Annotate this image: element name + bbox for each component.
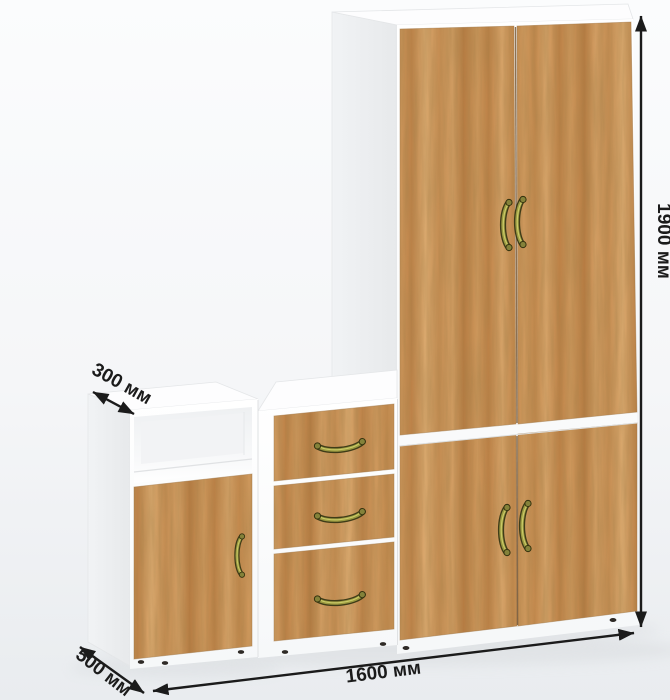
cabinet-side-panel xyxy=(88,394,130,666)
cabinet-open-niche xyxy=(134,407,252,483)
product-render: 1900 мм 1600 мм 500 мм 300 мм xyxy=(0,0,670,700)
height-dimension-label: 1900 мм xyxy=(653,203,670,279)
furniture-product-image: 1900 мм 1600 мм 500 мм 300 мм xyxy=(0,0,670,700)
